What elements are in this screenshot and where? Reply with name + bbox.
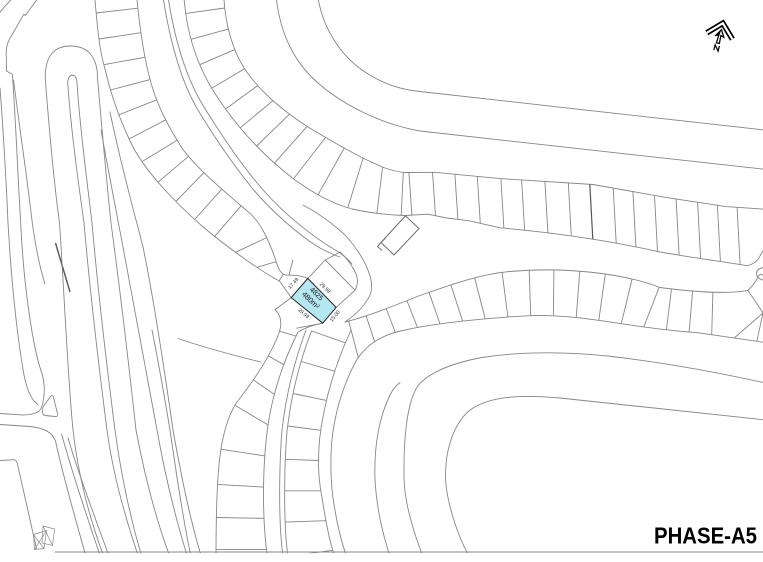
svg-text:PHASE-A5: PHASE-A5 [654,523,757,549]
